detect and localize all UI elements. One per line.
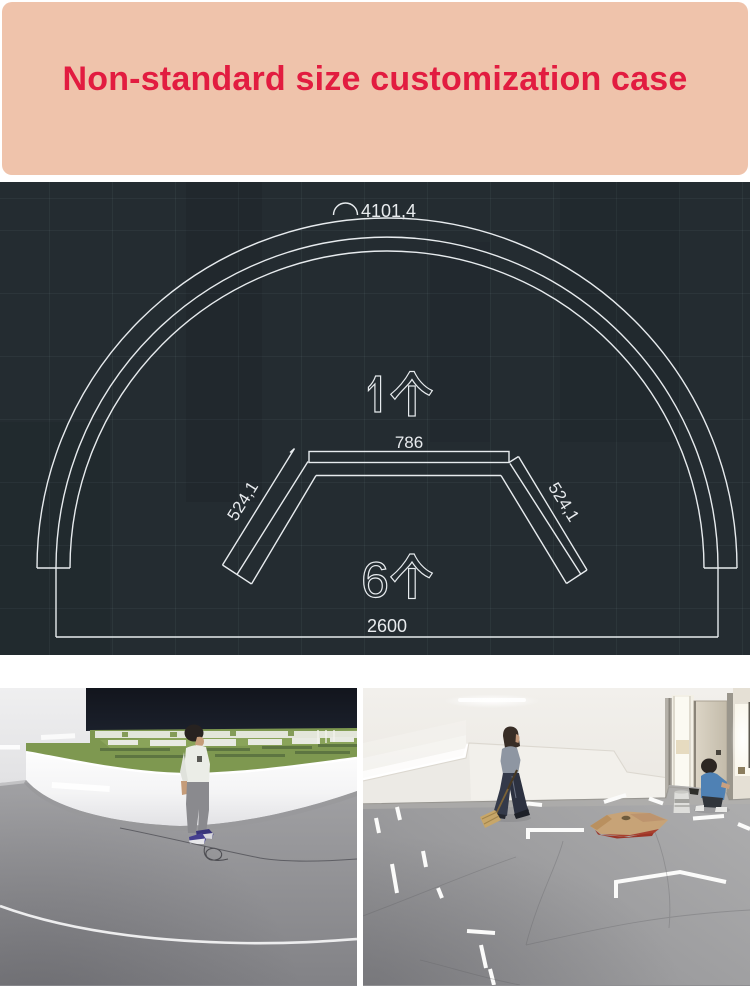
svg-text:2600: 2600	[367, 616, 407, 636]
svg-text:786: 786	[395, 433, 423, 452]
svg-text:524,1: 524,1	[544, 479, 583, 525]
svg-text:6: 6	[361, 552, 389, 608]
svg-text:4101,4: 4101,4	[361, 201, 416, 221]
